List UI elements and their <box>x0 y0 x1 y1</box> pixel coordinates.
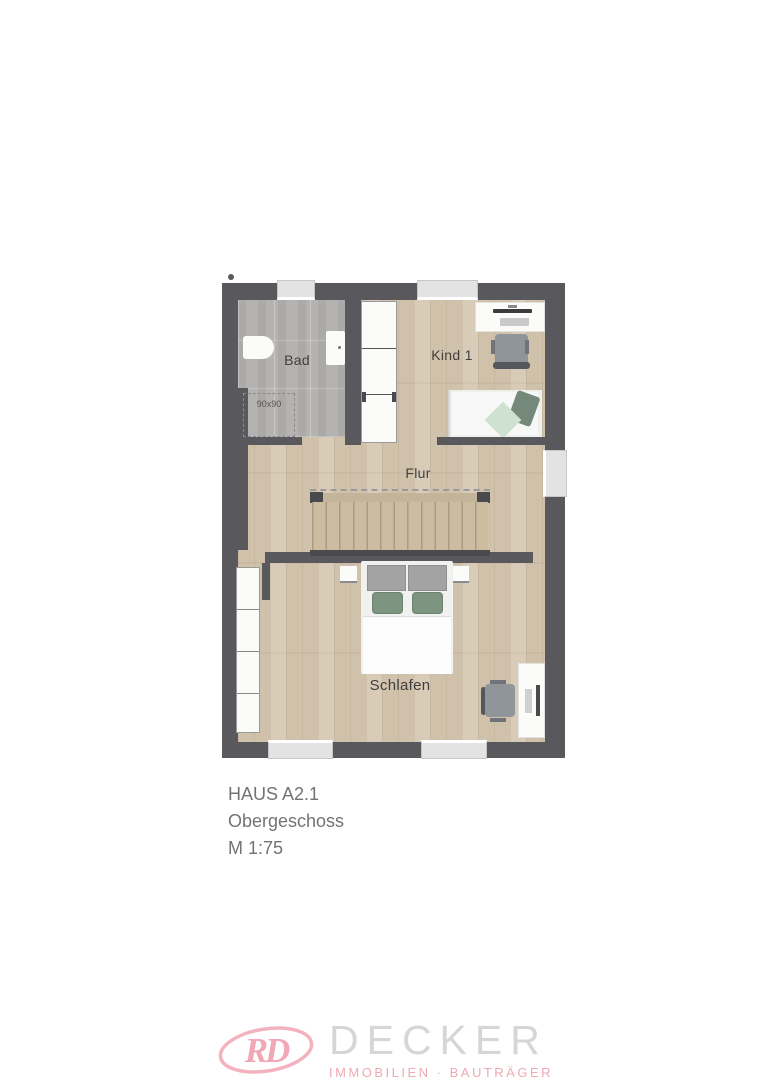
wardrobe-divider <box>362 348 396 349</box>
wardrobe-post <box>362 392 366 402</box>
shower: 90x90 <box>243 393 295 437</box>
stair-headroom-dashed-line <box>310 489 490 491</box>
floor-name: Obergeschoss <box>228 808 344 835</box>
wardrobe-post <box>392 392 396 402</box>
company-logo: RD DECKER IMMOBILIEN · BAUTRÄGER <box>0 1020 768 1080</box>
pillow-green <box>412 592 443 614</box>
title-block: HAUS A2.1 Obergeschoss M 1:75 <box>228 781 344 862</box>
brand-tagline: IMMOBILIEN · BAUTRÄGER <box>329 1065 553 1080</box>
wardrobe-kind1 <box>361 301 397 443</box>
monitor-icon <box>536 685 540 716</box>
wall-kind1-bottom <box>437 437 545 445</box>
monitor-icon <box>493 309 532 313</box>
rd-monogram-icon: RD <box>215 1020 317 1080</box>
room-label-schlafen: Schlafen <box>360 677 440 694</box>
wardrobe-divider <box>237 693 259 694</box>
nightstand-right <box>452 566 469 583</box>
brand-text-block: DECKER IMMOBILIEN · BAUTRÄGER <box>329 1020 553 1080</box>
washbasin <box>326 331 345 365</box>
desk-schlafen <box>518 663 545 738</box>
rd-monogram-text: RD <box>244 1031 290 1070</box>
monitor-stand <box>508 305 517 308</box>
survey-point-dot <box>228 274 234 280</box>
bed-kind1 <box>448 390 542 437</box>
stair-top-stringer <box>323 493 477 502</box>
pillow-gray <box>367 565 406 591</box>
pillow-gray <box>408 565 447 591</box>
window-top-bad <box>277 280 315 300</box>
chair-armrest <box>490 718 506 722</box>
room-label-bad: Bad <box>267 352 327 368</box>
bed-duvet <box>363 616 451 674</box>
bed-schlafen <box>361 561 453 674</box>
keyboard-icon <box>500 318 529 326</box>
chair-armrest <box>525 340 529 354</box>
room-label-flur: Flur <box>388 465 448 481</box>
wardrobe-divider <box>237 651 259 652</box>
nightstand-left <box>340 566 357 583</box>
floor-plan: 90x90 Bad Kind 1 Flur Schlafen <box>222 278 565 758</box>
wall-bad-kind1 <box>345 300 361 445</box>
scale-label: M 1:75 <box>228 835 344 862</box>
chair-armrest <box>490 680 506 684</box>
wardrobe-divider <box>237 609 259 610</box>
window-right-flur <box>543 450 567 497</box>
stair-treads <box>312 502 488 552</box>
chair-armrest <box>491 340 495 354</box>
house-name: HAUS A2.1 <box>228 781 344 808</box>
staircase <box>310 489 490 557</box>
desk-kind1 <box>475 302 545 332</box>
wardrobe-schlafen <box>236 567 260 733</box>
room-label-kind1: Kind 1 <box>422 347 482 363</box>
wardrobe-divider <box>362 394 396 395</box>
shower-size-label: 90x90 <box>257 399 282 409</box>
brand-name: DECKER <box>329 1020 553 1061</box>
window-top-kind1 <box>417 280 478 300</box>
window-bottom-left <box>268 740 333 759</box>
wall-stub-schlafen <box>262 563 270 600</box>
chair-schlafen <box>485 684 515 717</box>
wall-right <box>545 283 565 758</box>
washbasin-tap <box>338 346 341 349</box>
wall-top <box>222 283 565 300</box>
keyboard-icon <box>525 689 532 713</box>
chair-backrest <box>493 362 530 369</box>
window-bottom-right <box>421 740 487 759</box>
pillow-green <box>372 592 403 614</box>
stair-bottom-rail <box>310 550 490 556</box>
